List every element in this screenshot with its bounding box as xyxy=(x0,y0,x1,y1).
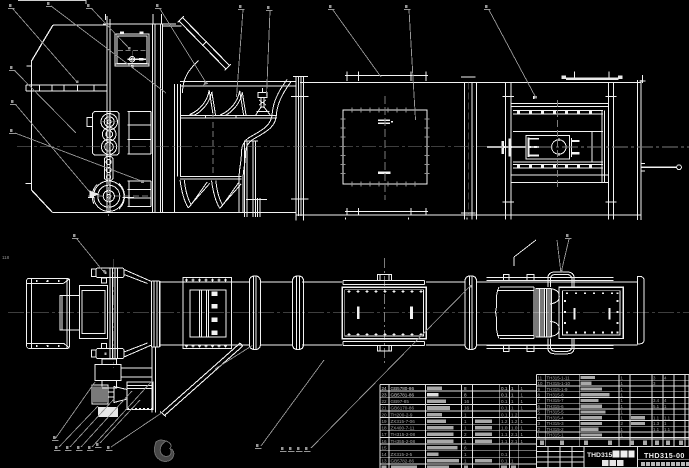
svg-text:1: 1 xyxy=(464,452,467,457)
svg-text:1: 1 xyxy=(464,412,467,417)
svg-text:2: 2 xyxy=(464,432,467,437)
svg-text:1.1: 1.1 xyxy=(653,427,660,432)
svg-text:1: 1 xyxy=(464,419,467,424)
svg-text:20: 20 xyxy=(382,412,388,417)
svg-text:1.0: 1.0 xyxy=(501,426,508,431)
svg-text:3.4: 3.4 xyxy=(653,398,660,403)
svg-text:2.1: 2.1 xyxy=(511,432,518,437)
svg-text:GB5780-86: GB5780-86 xyxy=(391,386,415,391)
svg-text:1.1: 1.1 xyxy=(501,439,508,444)
svg-text:TH315-1-10: TH315-1-10 xyxy=(547,381,571,386)
svg-text:TH315-8: TH315-8 xyxy=(547,392,565,397)
svg-text:TH315-6: TH315-6 xyxy=(547,404,565,409)
svg-text:TH315-1-11: TH315-1-11 xyxy=(547,375,571,380)
svg-text:24: 24 xyxy=(382,386,388,391)
svg-text:TH315-7: TH315-7 xyxy=(547,398,565,403)
svg-text:19: 19 xyxy=(382,419,388,424)
svg-text:16: 16 xyxy=(464,406,470,411)
svg-text:2.1: 2.1 xyxy=(511,439,518,444)
svg-text:0.1: 0.1 xyxy=(501,452,508,457)
svg-text:1.1: 1.1 xyxy=(501,432,508,437)
svg-text:1: 1 xyxy=(464,439,467,444)
svg-text:16: 16 xyxy=(464,399,470,404)
svg-text:1.0: 1.0 xyxy=(511,426,518,431)
svg-text:0.1: 0.1 xyxy=(501,399,508,404)
svg-text:1: 1 xyxy=(511,459,514,464)
svg-text:14: 14 xyxy=(382,452,388,457)
svg-text:1.1: 1.1 xyxy=(664,427,671,432)
svg-text:0.1: 0.1 xyxy=(501,386,508,391)
svg-text:0.1: 0.1 xyxy=(501,412,508,417)
svg-text:1.2: 1.2 xyxy=(511,419,518,424)
svg-text:17: 17 xyxy=(382,432,388,437)
svg-text:8: 8 xyxy=(464,392,467,397)
svg-text:GB6170-86: GB6170-86 xyxy=(391,406,415,411)
svg-text:TH315-2: TH315-2 xyxy=(547,427,565,432)
svg-text:5.1: 5.1 xyxy=(653,404,660,409)
svg-text:0.1: 0.1 xyxy=(501,459,508,464)
svg-text:TH315-5: TH315-5 xyxy=(547,410,565,415)
svg-text:GB97-85: GB97-85 xyxy=(391,399,410,404)
svg-text:ZX400-7-11: ZX400-7-11 xyxy=(391,426,415,431)
svg-text:THD315: THD315 xyxy=(587,452,613,459)
svg-text:8: 8 xyxy=(464,386,467,391)
svg-text:22: 22 xyxy=(382,399,388,404)
svg-text:1: 1 xyxy=(464,459,467,464)
svg-text:15: 15 xyxy=(382,445,388,450)
svg-text:ZX315-2-5: ZX315-2-5 xyxy=(391,452,413,457)
svg-text:1.2: 1.2 xyxy=(501,419,508,424)
svg-text:0.1: 0.1 xyxy=(501,392,508,397)
svg-text:1: 1 xyxy=(511,386,514,391)
svg-text:0.1: 0.1 xyxy=(501,406,508,411)
svg-text:TH315-1: TH315-1 xyxy=(547,433,565,438)
svg-text:21: 21 xyxy=(382,406,388,411)
svg-text:TH315-3: TH315-3 xyxy=(547,421,565,426)
svg-text:THD315-00: THD315-00 xyxy=(644,451,685,460)
svg-text:16: 16 xyxy=(382,439,388,444)
svg-text:1: 1 xyxy=(464,426,467,431)
svg-text:TH200-2-9: TH200-2-9 xyxy=(391,412,413,417)
svg-text:118: 118 xyxy=(2,255,10,260)
svg-text:1.2: 1.2 xyxy=(511,412,518,417)
svg-text:TH315-2-08: TH315-2-08 xyxy=(391,432,416,437)
svg-text:ZX315-7-06: ZX315-7-06 xyxy=(391,419,416,424)
svg-text:1: 1 xyxy=(511,392,514,397)
svg-text:1.1: 1.1 xyxy=(653,415,660,420)
svg-text:GB5781-86: GB5781-86 xyxy=(391,392,415,397)
svg-text:TH355-2-08: TH355-2-08 xyxy=(391,439,416,444)
svg-text:TH315-4: TH315-4 xyxy=(547,415,565,420)
svg-text:TH315-1-9: TH315-1-9 xyxy=(547,387,569,392)
svg-text:10: 10 xyxy=(538,381,543,386)
svg-text:23: 23 xyxy=(382,392,388,397)
svg-text:6: 6 xyxy=(464,445,467,450)
svg-text:1.1: 1.1 xyxy=(664,415,671,420)
svg-text:11: 11 xyxy=(538,375,543,380)
svg-text:1: 1 xyxy=(511,406,514,411)
svg-text:18: 18 xyxy=(382,426,388,431)
svg-text:1: 1 xyxy=(511,399,514,404)
svg-text:GB5782-86: GB5782-86 xyxy=(391,459,415,464)
svg-text:13: 13 xyxy=(382,459,388,464)
svg-text:1.3: 1.3 xyxy=(653,421,660,426)
